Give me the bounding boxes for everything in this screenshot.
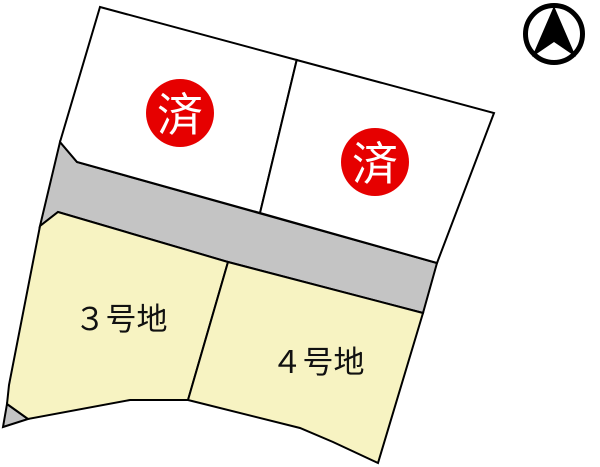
sold-badge-1-label: 済: [157, 88, 203, 142]
lot-map: 済 済 ３号地 ４号地: [0, 0, 600, 467]
lot-4-label: ４号地: [272, 345, 365, 381]
sold-badge-2-label: 済: [352, 137, 398, 191]
sold-badge-1: 済: [146, 79, 214, 147]
lot-map-page: 済 済 ３号地 ４号地: [0, 0, 600, 467]
lot-3-label: ３号地: [75, 302, 168, 338]
north-arrow-pointer: [532, 6, 576, 57]
sold-badge-2: 済: [341, 128, 409, 196]
north-arrow-icon: [526, 6, 583, 63]
